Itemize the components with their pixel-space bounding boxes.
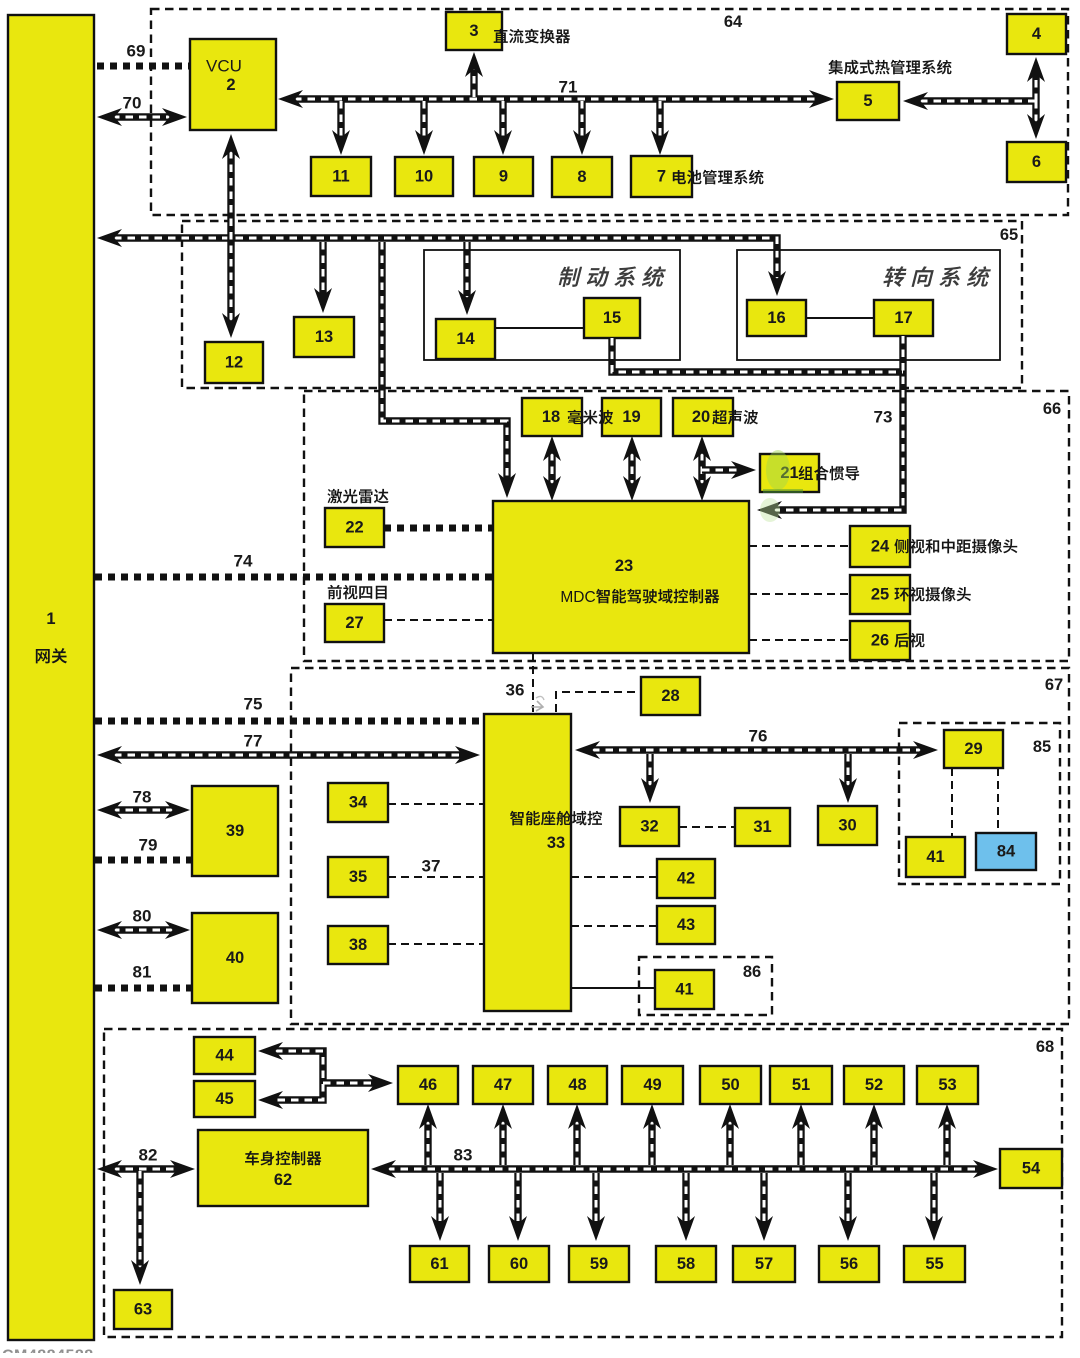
svg-text:79: 79 (139, 836, 158, 855)
svg-text:44: 44 (215, 1047, 234, 1065)
svg-text:85: 85 (1033, 738, 1051, 756)
svg-text:1: 1 (46, 610, 55, 628)
svg-text:17: 17 (894, 309, 912, 327)
svg-text:直流变换器: 直流变换器 (493, 25, 571, 47)
svg-text:转向系统: 转向系统 (882, 260, 994, 292)
svg-text:71: 71 (559, 78, 578, 97)
svg-text:77: 77 (244, 732, 263, 751)
svg-text:82: 82 (139, 1146, 158, 1165)
svg-text:前视四目: 前视四目 (327, 581, 389, 603)
svg-text:MDC智能驾驶域控制器: MDC智能驾驶域控制器 (560, 585, 720, 607)
svg-text:32: 32 (640, 818, 658, 836)
svg-text:81: 81 (133, 963, 152, 982)
svg-text:60: 60 (510, 1255, 528, 1273)
svg-text:侧视和中距摄像头: 侧视和中距摄像头 (894, 535, 1018, 557)
svg-text:40: 40 (226, 949, 244, 967)
svg-text:35: 35 (349, 868, 367, 886)
svg-text:39: 39 (226, 822, 244, 840)
svg-text:激光雷达: 激光雷达 (327, 485, 390, 507)
svg-text:22: 22 (345, 519, 363, 537)
svg-text:42: 42 (677, 870, 695, 888)
svg-text:41: 41 (926, 848, 944, 866)
svg-text:34: 34 (349, 794, 368, 812)
svg-text:24: 24 (871, 538, 890, 556)
svg-text:47: 47 (494, 1076, 512, 1094)
svg-text:74: 74 (234, 552, 253, 571)
svg-text:后视: 后视 (894, 629, 926, 651)
svg-text:67: 67 (1045, 676, 1063, 694)
svg-text:49: 49 (643, 1076, 661, 1094)
svg-text:11: 11 (332, 168, 349, 186)
svg-text:62: 62 (274, 1171, 292, 1189)
svg-text:集成式热管理系统: 集成式热管理系统 (828, 56, 953, 78)
svg-text:55: 55 (925, 1255, 943, 1273)
svg-text:52: 52 (865, 1076, 883, 1094)
svg-text:48: 48 (568, 1076, 586, 1094)
svg-text:14: 14 (456, 330, 475, 348)
svg-text:25: 25 (871, 586, 889, 604)
svg-text:制动系统: 制动系统 (557, 260, 669, 292)
svg-text:80: 80 (133, 907, 152, 926)
svg-text:63: 63 (134, 1301, 152, 1319)
svg-text:65: 65 (1000, 226, 1018, 244)
svg-text:28: 28 (661, 687, 679, 705)
svg-text:超声波: 超声波 (712, 406, 759, 428)
svg-text:5: 5 (863, 92, 872, 110)
svg-text:27: 27 (345, 614, 363, 632)
svg-text:45: 45 (215, 1090, 233, 1108)
svg-text:70: 70 (123, 94, 142, 113)
svg-text:智能座舱域控: 智能座舱域控 (509, 807, 603, 829)
svg-text:16: 16 (767, 309, 785, 327)
svg-text:13: 13 (315, 328, 333, 346)
svg-text:75: 75 (244, 695, 263, 714)
svg-text:VCU: VCU (206, 57, 242, 76)
svg-text:6: 6 (1032, 153, 1041, 171)
svg-text:毫米波: 毫米波 (567, 406, 614, 428)
svg-text:8: 8 (577, 168, 586, 186)
svg-text:23: 23 (615, 557, 633, 575)
svg-text:29: 29 (964, 740, 982, 758)
svg-text:58: 58 (677, 1255, 695, 1273)
svg-text:36: 36 (506, 681, 525, 700)
svg-text:15: 15 (603, 309, 621, 327)
svg-text:7: 7 (657, 168, 666, 186)
svg-text:43: 43 (677, 916, 695, 934)
svg-text:41: 41 (675, 981, 693, 999)
svg-text:76: 76 (749, 727, 768, 746)
svg-text:50: 50 (721, 1076, 739, 1094)
svg-text:68: 68 (1036, 1038, 1054, 1056)
svg-text:26: 26 (871, 632, 889, 650)
svg-text:12: 12 (225, 354, 243, 372)
svg-text:73: 73 (874, 408, 893, 427)
svg-text:69: 69 (127, 42, 146, 61)
svg-text:网关: 网关 (35, 643, 69, 667)
svg-text:环视摄像头: 环视摄像头 (894, 583, 972, 605)
svg-text:84: 84 (997, 843, 1016, 861)
svg-text:19: 19 (622, 408, 640, 426)
svg-text:38: 38 (349, 936, 367, 954)
svg-text:46: 46 (419, 1076, 437, 1094)
svg-text:18: 18 (542, 408, 560, 426)
svg-text:86: 86 (743, 963, 761, 981)
svg-text:51: 51 (792, 1076, 810, 1094)
svg-text:37: 37 (422, 857, 441, 876)
svg-text:CM4884588: CM4884588 (2, 1348, 94, 1354)
svg-text:3: 3 (469, 22, 478, 40)
svg-text:59: 59 (590, 1255, 608, 1273)
svg-text:4: 4 (1032, 25, 1042, 43)
svg-text:31: 31 (753, 818, 771, 836)
svg-text:66: 66 (1043, 400, 1061, 418)
svg-text:53: 53 (938, 1076, 956, 1094)
svg-text:83: 83 (454, 1146, 473, 1165)
svg-text:车身控制器: 车身控制器 (244, 1147, 322, 1169)
svg-text:78: 78 (133, 788, 152, 807)
svg-text:33: 33 (547, 834, 565, 852)
svg-text:30: 30 (838, 817, 856, 835)
svg-text:9: 9 (499, 168, 508, 186)
svg-text:56: 56 (840, 1255, 858, 1273)
svg-text:组合惯导: 组合惯导 (798, 462, 860, 484)
svg-text:64: 64 (724, 13, 743, 31)
svg-text:57: 57 (755, 1255, 773, 1273)
svg-text:20: 20 (692, 408, 710, 426)
svg-text:54: 54 (1022, 1160, 1041, 1178)
svg-text:电池管理系统: 电池管理系统 (671, 166, 765, 188)
svg-text:10: 10 (415, 168, 433, 186)
svg-text:2: 2 (226, 76, 235, 94)
svg-text:61: 61 (430, 1255, 448, 1273)
